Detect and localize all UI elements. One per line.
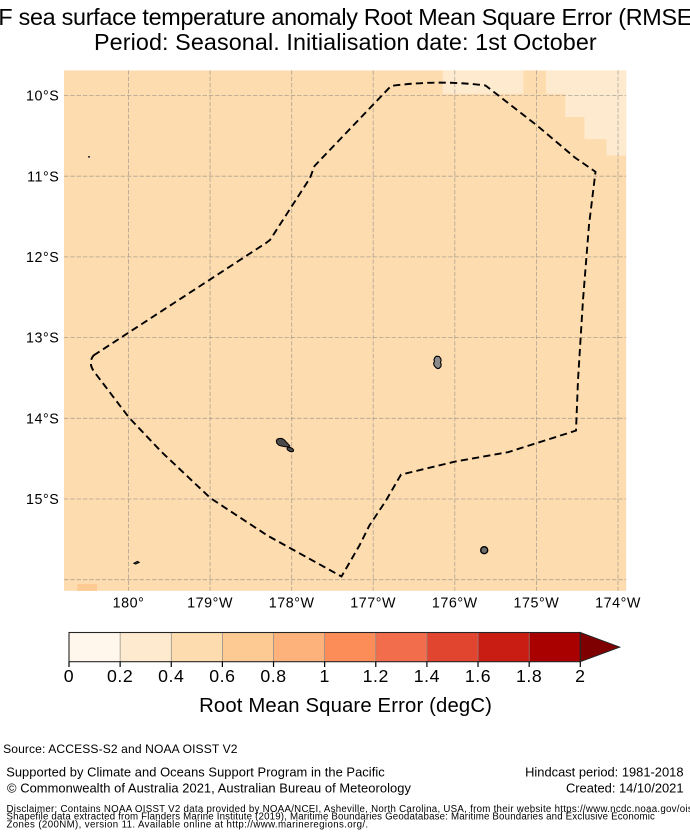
- svg-text:11°S: 11°S: [27, 169, 59, 185]
- svg-text:0: 0: [64, 666, 74, 686]
- svg-text:1.4: 1.4: [414, 666, 440, 686]
- svg-text:177°W: 177°W: [350, 595, 396, 611]
- svg-text:Root Mean Square Error (degC): Root Mean Square Error (degC): [199, 695, 492, 717]
- svg-text:1.6: 1.6: [465, 666, 491, 686]
- svg-text:Supported by Climate and Ocean: Supported by Climate and Oceans Support …: [6, 764, 385, 779]
- svg-text:179°W: 179°W: [187, 595, 233, 611]
- svg-text:180°: 180°: [113, 595, 145, 611]
- svg-text:© Commonwealth of Australia 20: © Commonwealth of Australia 2021, Austra…: [7, 781, 411, 796]
- svg-text:F sea surface temperature anom: F sea surface temperature anomaly Root M…: [0, 4, 690, 30]
- svg-text:12°S: 12°S: [26, 250, 59, 266]
- svg-text:174°W: 174°W: [595, 595, 641, 611]
- svg-text:175°W: 175°W: [513, 595, 559, 611]
- svg-text:10°S: 10°S: [26, 89, 59, 105]
- svg-text:Created: 14/10/2021: Created: 14/10/2021: [566, 781, 684, 796]
- svg-text:Source: ACCESS-S2 and NOAA OIS: Source: ACCESS-S2 and NOAA OISST V2: [3, 742, 238, 756]
- svg-text:176°W: 176°W: [432, 595, 478, 611]
- svg-text:1.8: 1.8: [516, 666, 542, 686]
- svg-text:0.6: 0.6: [209, 666, 235, 686]
- svg-text:Period: Seasonal. Initialisati: Period: Seasonal. Initialisation date: 1…: [94, 29, 597, 55]
- svg-text:14°S: 14°S: [26, 411, 59, 427]
- svg-text:1.2: 1.2: [363, 666, 389, 686]
- svg-text:0.4: 0.4: [158, 666, 184, 686]
- svg-text:0.2: 0.2: [107, 666, 133, 686]
- svg-text:Hindcast period: 1981-2018: Hindcast period: 1981-2018: [525, 764, 683, 779]
- svg-text:Zones (200NM), version 11. Ava: Zones (200NM), version 11. Available onl…: [7, 820, 369, 831]
- svg-text:15°S: 15°S: [26, 492, 59, 508]
- svg-text:0.8: 0.8: [260, 666, 286, 686]
- svg-text:1: 1: [319, 666, 329, 686]
- svg-text:2: 2: [575, 666, 585, 686]
- svg-text:178°W: 178°W: [269, 595, 315, 611]
- svg-text:13°S: 13°S: [26, 331, 59, 347]
